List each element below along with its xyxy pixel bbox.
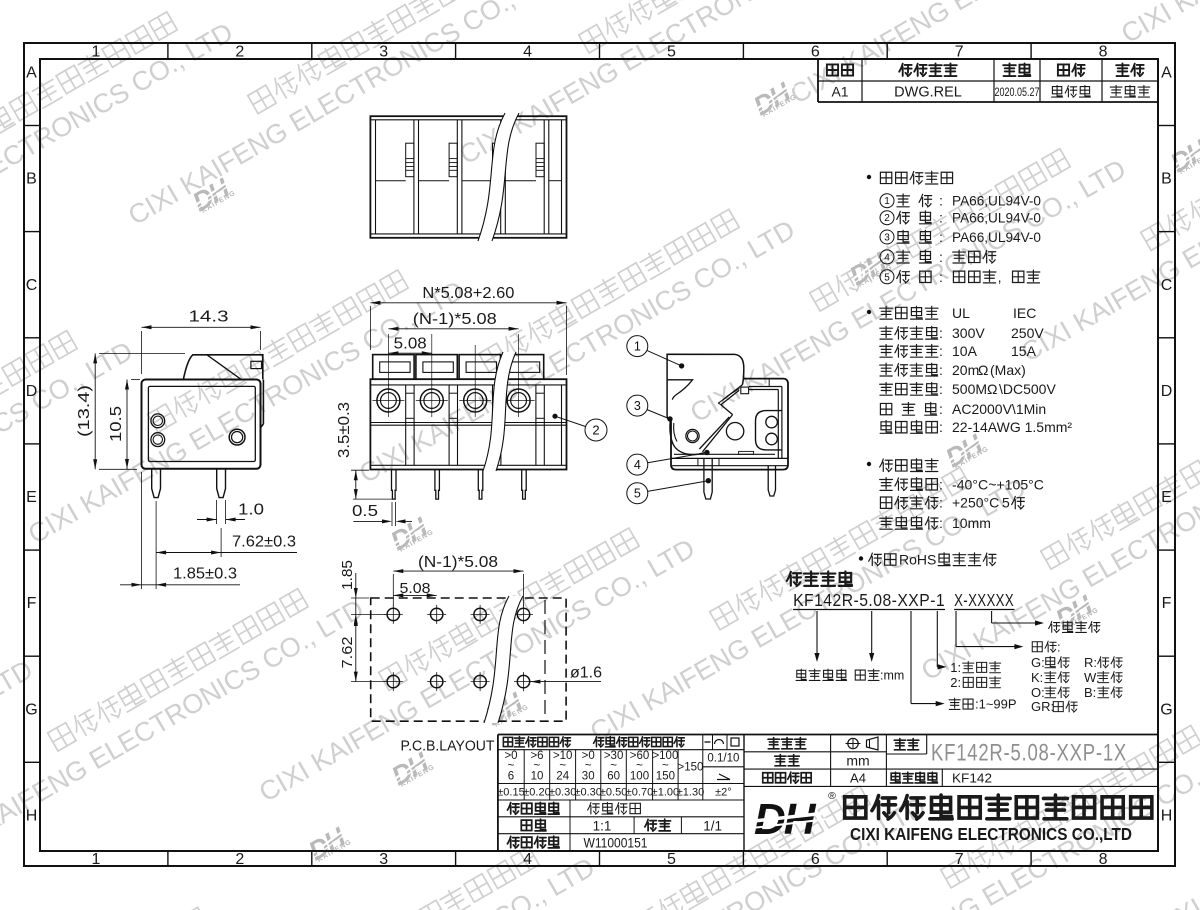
svg-text::: : [939, 193, 943, 209]
svg-text:100: 100 [630, 771, 649, 783]
svg-text:1/1: 1/1 [703, 818, 722, 833]
svg-text:6: 6 [811, 851, 820, 868]
svg-text:30: 30 [582, 771, 595, 783]
svg-text:±0.30: ±0.30 [549, 787, 576, 799]
svg-text:5: 5 [634, 487, 641, 501]
svg-text:3: 3 [634, 399, 641, 413]
svg-text:2: 2 [235, 44, 244, 61]
svg-text::: : [939, 229, 943, 245]
svg-text:GR:: GR: [1031, 699, 1054, 714]
svg-text:22-14AWG 1.5mm²: 22-14AWG 1.5mm² [952, 419, 1072, 435]
svg-text:PA66,UL94V-0: PA66,UL94V-0 [952, 229, 1041, 245]
svg-text:1: 1 [91, 44, 100, 61]
svg-text:14.3: 14.3 [189, 309, 229, 326]
svg-text:Ω: Ω [987, 381, 997, 397]
svg-text:C: C [1161, 277, 1173, 294]
svg-text:1:: 1: [950, 660, 961, 675]
svg-text:60: 60 [607, 771, 620, 783]
svg-text:500M: 500M [952, 381, 987, 397]
svg-text:DWG.REL: DWG.REL [894, 85, 962, 101]
svg-text:±0.20: ±0.20 [523, 787, 550, 799]
svg-text:±0.50: ±0.50 [600, 787, 627, 799]
svg-text:1: 1 [91, 851, 100, 868]
svg-text:>150: >150 [678, 762, 704, 774]
svg-text:+250°C: +250°C [952, 495, 999, 511]
svg-text:Ω: Ω [978, 362, 988, 378]
svg-text:7.62: 7.62 [339, 637, 356, 669]
svg-text:10mm: 10mm [952, 515, 991, 531]
svg-text:±1.30: ±1.30 [677, 787, 704, 799]
svg-text:2: 2 [884, 213, 890, 224]
svg-text::: : [939, 210, 943, 226]
svg-text:®: ® [828, 790, 836, 802]
svg-text:PA66,UL94V-0: PA66,UL94V-0 [952, 193, 1041, 209]
svg-text::: : [939, 343, 943, 359]
svg-text:±0.15: ±0.15 [497, 787, 524, 799]
svg-text:5: 5 [667, 851, 676, 868]
svg-text:IEC: IEC [1013, 305, 1036, 321]
svg-text:7.62±0.3: 7.62±0.3 [232, 534, 296, 551]
svg-text::: : [939, 249, 943, 265]
svg-text:(N-1)*5.08: (N-1)*5.08 [413, 311, 497, 328]
svg-text:\DC500V: \DC500V [999, 381, 1056, 397]
svg-text:KF142R-5.08-XXP-1: KF142R-5.08-XXP-1 [793, 590, 945, 610]
svg-text:250V: 250V [1011, 325, 1044, 341]
svg-text:15A: 15A [1011, 343, 1037, 359]
svg-text::: : [939, 515, 943, 531]
svg-text:A: A [26, 65, 37, 82]
svg-text:N*5.08+2.60: N*5.08+2.60 [422, 285, 514, 302]
svg-text:±0.30: ±0.30 [574, 787, 601, 799]
svg-text:1: 1 [634, 340, 641, 354]
svg-text:5.08: 5.08 [400, 580, 431, 597]
svg-text:20m: 20m [952, 362, 979, 378]
svg-text:5: 5 [884, 272, 890, 283]
svg-text:KF142: KF142 [952, 770, 992, 785]
svg-text::: : [939, 401, 943, 417]
svg-text::: : [1057, 639, 1061, 654]
svg-text:B: B [1161, 171, 1172, 188]
svg-text:B: B [26, 171, 37, 188]
svg-text:0.5: 0.5 [352, 503, 378, 520]
svg-text::: : [939, 325, 943, 341]
svg-text:4: 4 [523, 851, 532, 868]
svg-text:mm: mm [846, 753, 869, 769]
svg-text:A: A [1161, 65, 1172, 82]
svg-text:A4: A4 [850, 770, 866, 785]
svg-text:CIXI KAIFENG ELECTRONICS CO.,L: CIXI KAIFENG ELECTRONICS CO.,LTD [850, 824, 1132, 844]
svg-text::: : [939, 495, 943, 511]
svg-text:±0.70: ±0.70 [626, 787, 653, 799]
svg-text:C: C [26, 277, 38, 294]
svg-text:D: D [1161, 383, 1173, 400]
svg-text:B:: B: [1084, 685, 1096, 700]
svg-text:8: 8 [1099, 851, 1108, 868]
svg-text:2: 2 [235, 851, 244, 868]
svg-text:(Max): (Max) [990, 362, 1026, 378]
svg-text:1.85: 1.85 [339, 560, 356, 590]
svg-text:4: 4 [523, 44, 532, 61]
svg-text:D: D [26, 383, 38, 400]
svg-text:A1: A1 [831, 84, 848, 100]
svg-text::: : [939, 419, 943, 435]
svg-text:3.5±0.3: 3.5±0.3 [336, 402, 353, 458]
svg-text:E: E [1161, 489, 1172, 506]
svg-text:3: 3 [884, 233, 890, 244]
svg-text:O:: O: [1031, 685, 1045, 700]
svg-text:300V: 300V [952, 325, 985, 341]
svg-text:ø1.6: ø1.6 [570, 665, 602, 682]
svg-text::: : [939, 381, 943, 397]
svg-text:4: 4 [634, 458, 641, 472]
svg-text::1~99P: :1~99P [975, 697, 1017, 712]
svg-text:1: 1 [884, 196, 890, 207]
svg-text:,: , [998, 270, 1002, 286]
svg-text:3: 3 [379, 851, 388, 868]
svg-text:5: 5 [1002, 495, 1010, 511]
svg-text:G: G [25, 701, 37, 718]
svg-text:W11000151: W11000151 [584, 834, 648, 850]
svg-text:P.C.B.LAYOUT: P.C.B.LAYOUT [401, 739, 495, 755]
svg-text:F: F [1162, 595, 1172, 612]
svg-text:6: 6 [508, 771, 514, 783]
svg-text:W:: W: [1084, 670, 1100, 685]
svg-text:1:1: 1:1 [593, 818, 612, 833]
svg-text:1.85±0.3: 1.85±0.3 [173, 566, 237, 583]
svg-text:±1.00: ±1.00 [652, 787, 679, 799]
svg-text:10.5: 10.5 [108, 406, 125, 442]
svg-text:(N-1)*5.08: (N-1)*5.08 [418, 554, 498, 571]
svg-text:KF142R-5.08-XXP-1X: KF142R-5.08-XXP-1X [931, 740, 1127, 767]
svg-text:(13.4): (13.4) [76, 385, 93, 437]
svg-text:4: 4 [884, 252, 890, 263]
svg-text:2: 2 [592, 423, 599, 438]
svg-text:1.0: 1.0 [238, 502, 264, 519]
svg-text:10: 10 [531, 771, 544, 783]
svg-text:150: 150 [656, 771, 675, 783]
svg-text:7: 7 [955, 851, 964, 868]
svg-text:PA66,UL94V-0: PA66,UL94V-0 [952, 210, 1041, 226]
svg-text::: : [939, 362, 943, 378]
svg-text:2020.05.27: 2020.05.27 [995, 85, 1040, 99]
svg-text:8: 8 [1099, 44, 1108, 61]
svg-text:10A: 10A [952, 343, 978, 359]
svg-text:K:: K: [1031, 670, 1043, 685]
svg-text:3: 3 [379, 44, 388, 61]
svg-text:H: H [1161, 808, 1173, 825]
svg-text:-40°C~+105°C: -40°C~+105°C [952, 476, 1044, 492]
svg-text:H: H [26, 808, 38, 825]
svg-text:5: 5 [667, 44, 676, 61]
svg-text:X-XXXXX: X-XXXXX [954, 590, 1014, 610]
svg-text:5.08: 5.08 [394, 336, 427, 353]
svg-text:24: 24 [556, 771, 569, 783]
svg-text:F: F [27, 595, 37, 612]
svg-text:E: E [26, 489, 37, 506]
svg-text::: : [939, 476, 943, 492]
svg-text:7: 7 [955, 44, 964, 61]
svg-text:±2°: ±2° [715, 787, 732, 799]
svg-text:G: G [1160, 701, 1172, 718]
svg-text:RoHS: RoHS [899, 552, 936, 568]
svg-text:2:: 2: [950, 675, 961, 690]
svg-text:UL: UL [952, 305, 970, 321]
svg-text:G:: G: [1031, 655, 1045, 670]
svg-text:0.1/10: 0.1/10 [707, 753, 739, 765]
svg-text:AC2000V\1Min: AC2000V\1Min [952, 401, 1046, 417]
svg-text::mm: :mm [880, 669, 904, 683]
svg-text:R:: R: [1084, 655, 1097, 670]
svg-text:6: 6 [811, 44, 820, 61]
svg-text::: : [939, 269, 943, 285]
